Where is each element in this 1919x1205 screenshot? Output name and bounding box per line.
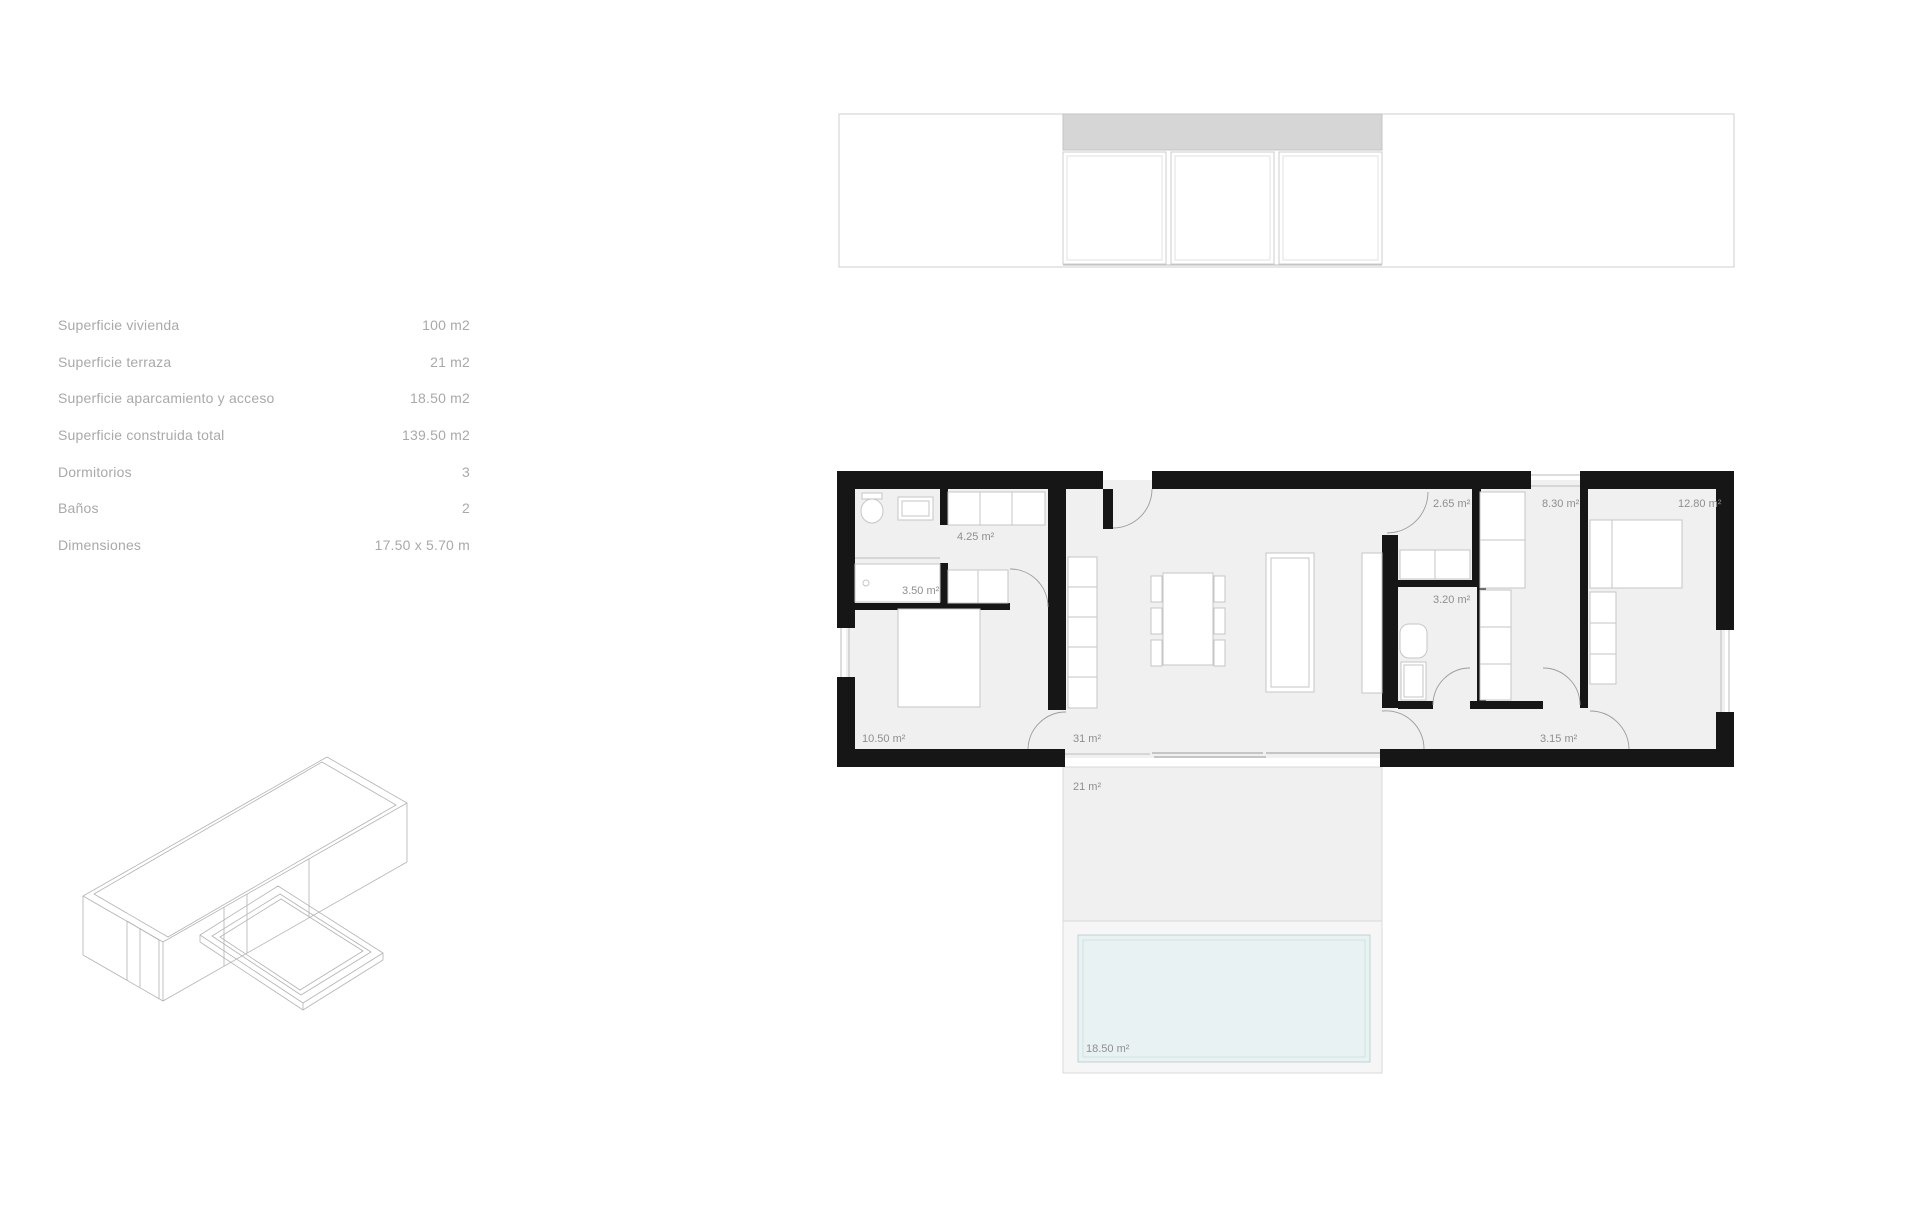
shower — [1401, 662, 1426, 700]
room-label-bath2: 3.20 m² — [1433, 594, 1471, 606]
elevation-window — [1279, 152, 1382, 264]
wall — [1580, 489, 1588, 708]
wall — [1470, 701, 1543, 709]
wall — [1048, 489, 1066, 710]
room-label-bedroom2: 12.80 m² — [1678, 498, 1722, 510]
wall — [837, 749, 1065, 767]
room-label-aseo: 2.65 m² — [1433, 498, 1471, 510]
kitchen-cabinets — [1068, 557, 1097, 708]
dining-table — [1163, 573, 1213, 665]
wall — [1103, 489, 1113, 529]
room-label-hallway: 3.15 m² — [1540, 733, 1578, 745]
kitchen-island — [1266, 553, 1314, 692]
iso-terrace — [200, 886, 383, 1003]
elevation-window — [1063, 152, 1166, 264]
bed — [1590, 520, 1682, 588]
room-label-bedroom1: 10.50 m² — [862, 733, 906, 745]
sink — [898, 497, 933, 520]
wall — [1382, 535, 1398, 708]
counter — [1362, 553, 1382, 693]
chair — [1214, 608, 1225, 634]
chair — [1214, 640, 1225, 666]
wall — [1380, 749, 1734, 767]
iso-roof — [83, 757, 407, 942]
drawings-canvas: 4.25 m² 3.50 m² 10.50 m² 31 m² 21 m² 2.6… — [0, 0, 1919, 1205]
elevation-window — [1171, 152, 1274, 264]
floor-plan: 4.25 m² 3.50 m² 10.50 m² 31 m² 21 m² 2.6… — [837, 471, 1734, 1073]
iso-pool — [212, 894, 371, 995]
bed — [898, 609, 980, 707]
wall — [837, 471, 855, 628]
wall — [837, 471, 1103, 489]
terrace-area — [1063, 767, 1382, 921]
room-label-terrace: 21 m² — [1073, 781, 1101, 793]
room-label-wardrobe: 4.25 m² — [957, 531, 995, 543]
wall — [1398, 701, 1433, 709]
chair — [1151, 576, 1162, 602]
room-label-pool: 18.50 m² — [1086, 1043, 1130, 1055]
toilet-bowl — [861, 499, 883, 523]
wall — [1716, 712, 1734, 767]
isometric-drawing — [83, 757, 407, 1010]
wall — [940, 563, 948, 603]
room-label-dressing: 8.30 m² — [1542, 498, 1580, 510]
elevation-drawing — [839, 114, 1734, 267]
toilet — [1400, 624, 1427, 658]
toilet — [862, 493, 882, 499]
wall — [1387, 580, 1480, 587]
wall — [1152, 471, 1531, 489]
chair — [1151, 640, 1162, 666]
wall — [1580, 471, 1734, 489]
room-label-living: 31 m² — [1073, 733, 1101, 745]
wardrobe — [1590, 592, 1616, 684]
wall — [940, 489, 948, 525]
chair — [1151, 608, 1162, 634]
wardrobe — [1480, 590, 1511, 700]
elevation-roof-band — [1063, 114, 1382, 150]
wall — [1716, 471, 1734, 630]
page: Superficie vivienda 100 m2 Superficie te… — [0, 0, 1919, 1205]
chair — [1214, 576, 1225, 602]
room-label-bath1: 3.50 m² — [902, 585, 940, 597]
closet — [948, 492, 1045, 525]
